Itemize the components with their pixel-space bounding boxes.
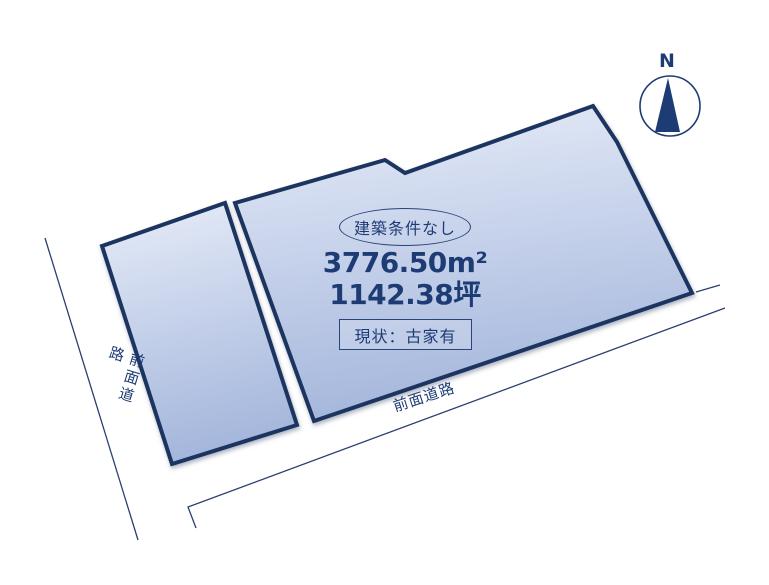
building-conditions-badge: 建築条件なし [339, 208, 471, 246]
area-square-meters: 3776.50m² [310, 246, 500, 280]
area-tsubo: 1142.38坪 [310, 278, 500, 312]
compass-north-label: N [652, 50, 682, 72]
site-plan-canvas: N 建築条件なし 3776.50m² 1142.38坪 現状：古家有 前面道路 … [0, 0, 769, 585]
road-line-extension [696, 285, 720, 292]
status-box: 現状：古家有 [339, 319, 472, 350]
compass-needle-icon [655, 78, 680, 132]
